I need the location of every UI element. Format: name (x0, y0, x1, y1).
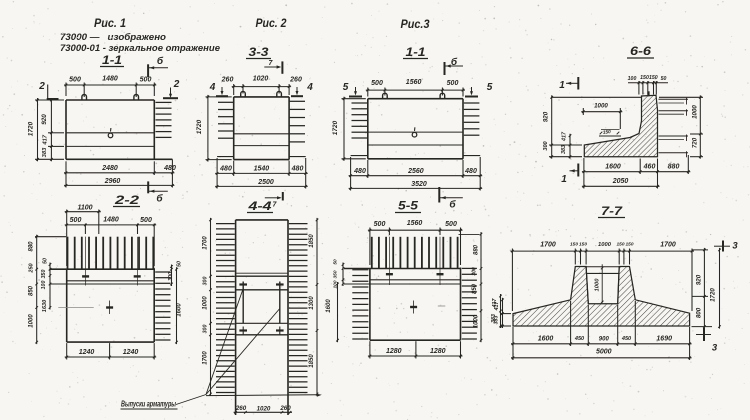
svg-text:480: 480 (464, 168, 477, 175)
svg-text:1000: 1000 (29, 314, 35, 328)
svg-text:1020: 1020 (253, 76, 269, 83)
svg-text:1700: 1700 (660, 242, 676, 249)
svg-text:150: 150 (570, 242, 578, 248)
svg-text:4: 4 (209, 82, 216, 93)
svg-text:500: 500 (445, 221, 457, 228)
svg-text:б: б (449, 199, 456, 211)
svg-text:2560: 2560 (407, 168, 424, 175)
svg-text:1100: 1100 (77, 205, 92, 212)
svg-text:2500: 2500 (257, 179, 274, 186)
svg-text:Рис. 2: Рис. 2 (256, 16, 287, 30)
svg-text:880: 880 (29, 241, 35, 252)
svg-text:480: 480 (163, 165, 176, 172)
svg-text:250: 250 (29, 262, 35, 273)
svg-text:1000: 1000 (692, 105, 699, 119)
svg-text:1: 1 (559, 80, 565, 91)
svg-text:500: 500 (70, 217, 82, 224)
svg-text:500: 500 (447, 80, 459, 87)
svg-text:460: 460 (643, 163, 656, 170)
svg-text:1240: 1240 (79, 349, 95, 356)
svg-text:300: 300 (543, 140, 549, 150)
svg-text:480: 480 (219, 166, 232, 173)
svg-text:Выпуски арматуры: Выпуски арматуры (121, 400, 176, 409)
svg-text:1000: 1000 (594, 103, 608, 110)
svg-text:417: 417 (43, 134, 49, 145)
svg-text:1480: 1480 (103, 217, 119, 224)
svg-text:4: 4 (306, 82, 313, 93)
svg-text:б: б (156, 193, 163, 205)
svg-text:1700: 1700 (203, 351, 209, 365)
svg-text:720: 720 (692, 137, 699, 148)
svg-text:3: 3 (732, 241, 738, 252)
svg-text:150: 150 (625, 242, 633, 248)
svg-text:1720: 1720 (710, 288, 717, 302)
svg-text:6-6: 6-6 (630, 44, 651, 58)
svg-text:2: 2 (38, 81, 45, 92)
svg-text:50: 50 (661, 76, 667, 82)
svg-text:50: 50 (333, 259, 339, 265)
svg-text:1700: 1700 (203, 236, 209, 250)
svg-text:1720: 1720 (332, 120, 339, 135)
svg-text:920: 920 (696, 274, 703, 285)
svg-text:417: 417 (562, 131, 568, 142)
svg-text:2960: 2960 (104, 178, 121, 185)
svg-text:Рис. 1: Рис. 1 (94, 16, 126, 30)
svg-text:73000-01 - зеркальное отражени: 73000-01 - зеркальное отражение (60, 43, 220, 53)
svg-text:5-5: 5-5 (398, 199, 418, 213)
svg-text:150: 150 (640, 75, 649, 81)
svg-text:1000: 1000 (595, 278, 601, 292)
svg-text:2480: 2480 (101, 165, 118, 172)
svg-text:150: 150 (579, 242, 587, 248)
svg-text:1000: 1000 (598, 242, 612, 248)
svg-text:150: 150 (616, 242, 624, 248)
svg-text:б: б (451, 56, 458, 68)
svg-text:300: 300 (472, 267, 478, 276)
svg-text:1600: 1600 (326, 299, 332, 313)
svg-text:150: 150 (602, 129, 611, 136)
svg-text:500: 500 (140, 77, 152, 84)
svg-text:1720: 1720 (196, 119, 203, 134)
svg-text:1600: 1600 (605, 164, 621, 171)
svg-text:300: 300 (168, 272, 174, 281)
svg-text:260: 260 (235, 405, 247, 412)
svg-text:1560: 1560 (407, 220, 423, 227)
svg-text:1480: 1480 (102, 76, 118, 83)
svg-text:1280: 1280 (386, 348, 402, 355)
svg-text:1000: 1000 (203, 296, 209, 310)
svg-text:450: 450 (574, 336, 585, 342)
svg-text:800: 800 (696, 307, 703, 318)
svg-text:450: 450 (621, 336, 632, 342)
svg-text:5: 5 (487, 82, 493, 93)
svg-text:1020: 1020 (257, 405, 271, 412)
svg-text:1-1: 1-1 (102, 53, 122, 67)
svg-text:1850: 1850 (309, 354, 315, 368)
svg-text:500: 500 (140, 217, 152, 224)
svg-text:350: 350 (333, 270, 339, 278)
svg-text:1: 1 (561, 174, 567, 185)
svg-text:73000 — изображено: 73000 — изображено (60, 32, 167, 42)
svg-text:1600: 1600 (538, 335, 554, 342)
svg-text:1280: 1280 (430, 348, 446, 355)
svg-text:100: 100 (628, 76, 637, 82)
svg-text:417: 417 (494, 301, 500, 312)
svg-text:850: 850 (472, 283, 478, 294)
svg-text:1-1: 1-1 (406, 45, 426, 59)
svg-text:350: 350 (41, 270, 47, 279)
svg-text:2: 2 (173, 79, 180, 90)
svg-text:2-2: 2-2 (114, 193, 140, 207)
svg-text:б: б (157, 55, 164, 67)
svg-text:1300: 1300 (309, 296, 315, 310)
svg-text:1850: 1850 (309, 234, 315, 248)
svg-text:480: 480 (353, 168, 366, 175)
svg-text:900: 900 (599, 336, 610, 342)
svg-text:3-3: 3-3 (249, 45, 269, 59)
svg-text:480: 480 (291, 166, 304, 173)
svg-text:850: 850 (29, 285, 35, 296)
svg-text:1000: 1000 (474, 314, 480, 328)
svg-text:1700: 1700 (540, 242, 556, 249)
svg-text:500: 500 (371, 80, 383, 87)
svg-text:50: 50 (177, 261, 183, 267)
svg-text:4-4: 4-4 (247, 199, 272, 213)
svg-text:300: 300 (203, 325, 209, 334)
svg-text:5000: 5000 (596, 349, 612, 356)
svg-text:1690: 1690 (656, 335, 672, 342)
svg-text:Рис.3: Рис.3 (401, 17, 430, 31)
svg-text:260: 260 (279, 405, 291, 412)
svg-text:383: 383 (494, 316, 500, 325)
svg-text:260: 260 (221, 77, 234, 84)
svg-text:260: 260 (289, 77, 302, 84)
svg-text:383: 383 (42, 147, 48, 157)
svg-text:3520: 3520 (411, 181, 427, 188)
svg-text:1540: 1540 (254, 166, 270, 173)
svg-text:1560: 1560 (406, 79, 422, 86)
svg-text:50: 50 (43, 258, 49, 264)
svg-text:1720: 1720 (28, 121, 35, 136)
svg-text:300: 300 (203, 277, 209, 286)
svg-text:1240: 1240 (123, 349, 139, 356)
svg-text:880: 880 (668, 163, 680, 170)
svg-text:500: 500 (69, 77, 81, 84)
svg-text:1630: 1630 (42, 299, 48, 312)
svg-text:920: 920 (41, 114, 48, 125)
svg-text:383: 383 (561, 145, 567, 154)
svg-text:7-7: 7-7 (601, 204, 624, 218)
svg-text:880: 880 (474, 244, 480, 255)
svg-text:2050: 2050 (612, 178, 629, 185)
svg-text:500: 500 (374, 221, 386, 228)
svg-text:150: 150 (649, 75, 658, 81)
svg-text:1600: 1600 (177, 303, 183, 317)
svg-text:5: 5 (343, 82, 349, 93)
svg-text:3: 3 (712, 343, 718, 354)
svg-text:100: 100 (41, 281, 47, 290)
svg-text:920: 920 (543, 111, 550, 122)
